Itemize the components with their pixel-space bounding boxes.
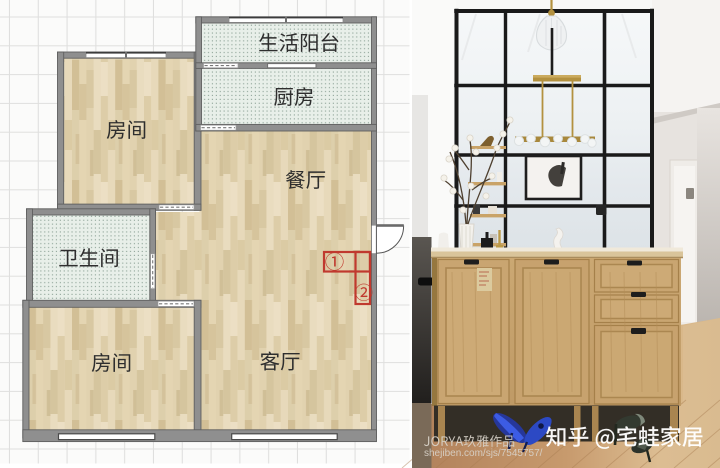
svg-text:shejiben.com/sjs/7545757/: shejiben.com/sjs/7545757/ [424, 448, 543, 459]
